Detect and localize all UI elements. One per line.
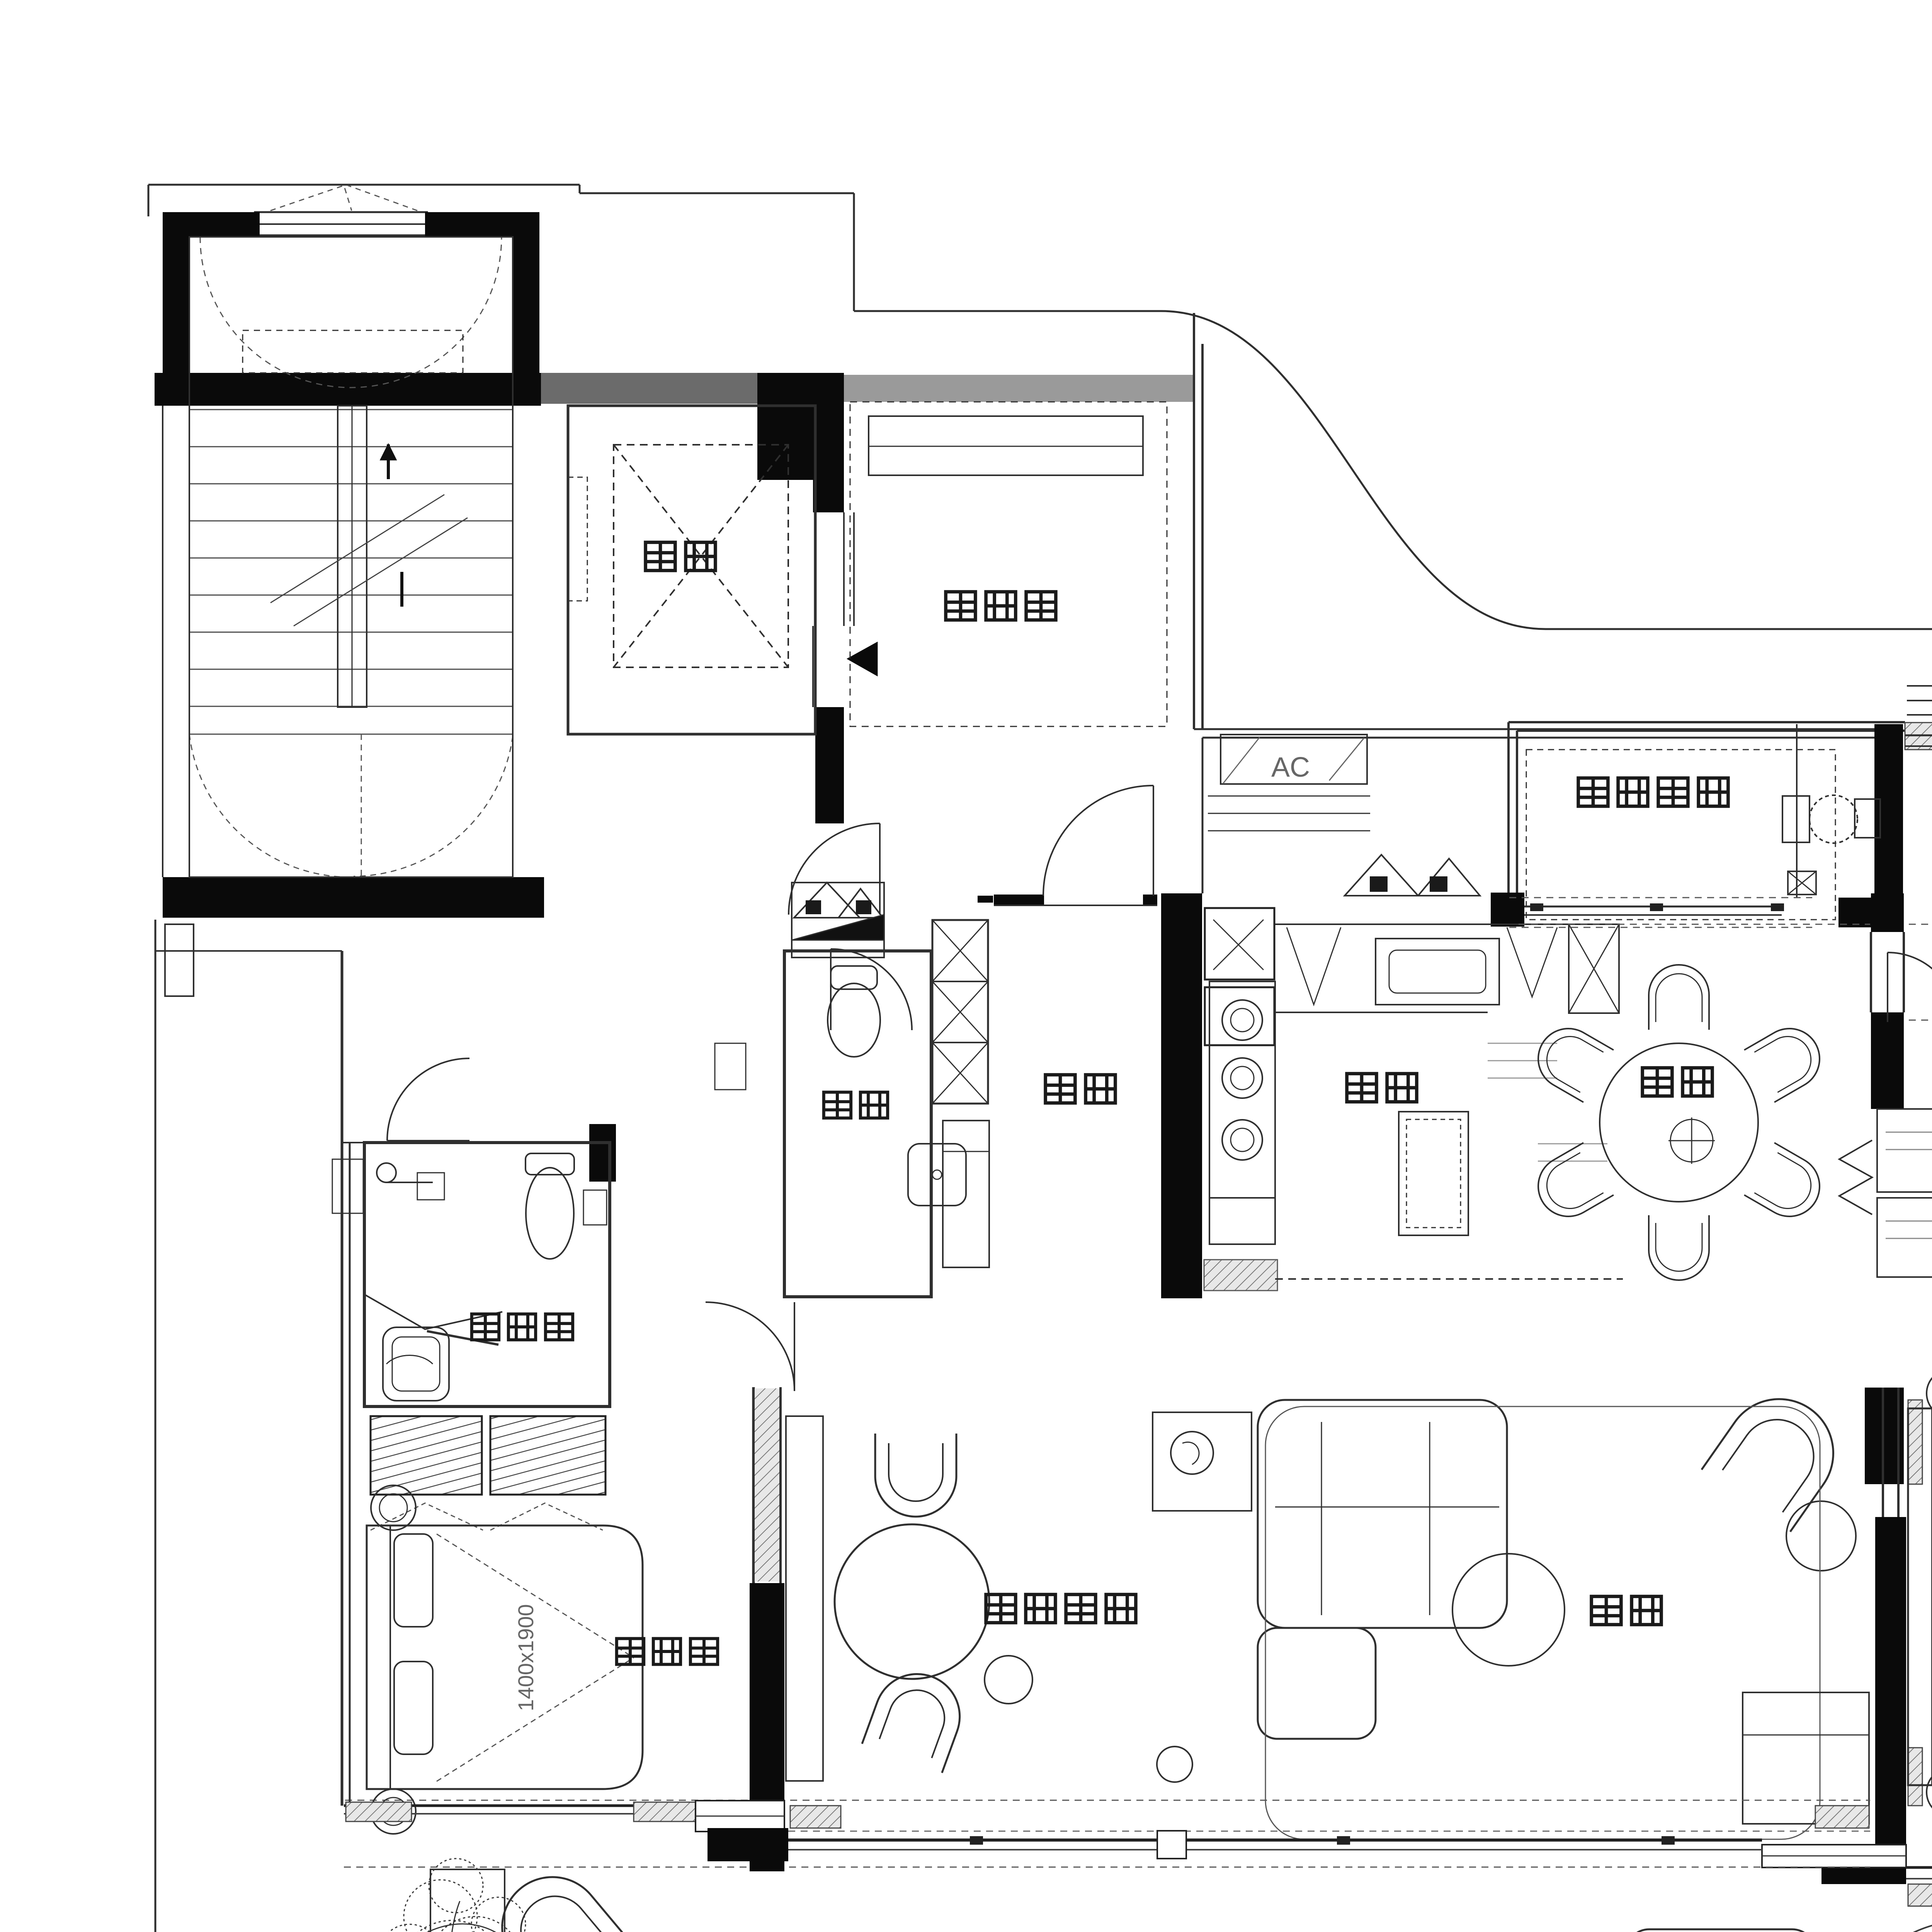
svg-text:1400x1900: 1400x1900 (514, 1604, 538, 1711)
svg-text:AC: AC (1271, 752, 1310, 783)
